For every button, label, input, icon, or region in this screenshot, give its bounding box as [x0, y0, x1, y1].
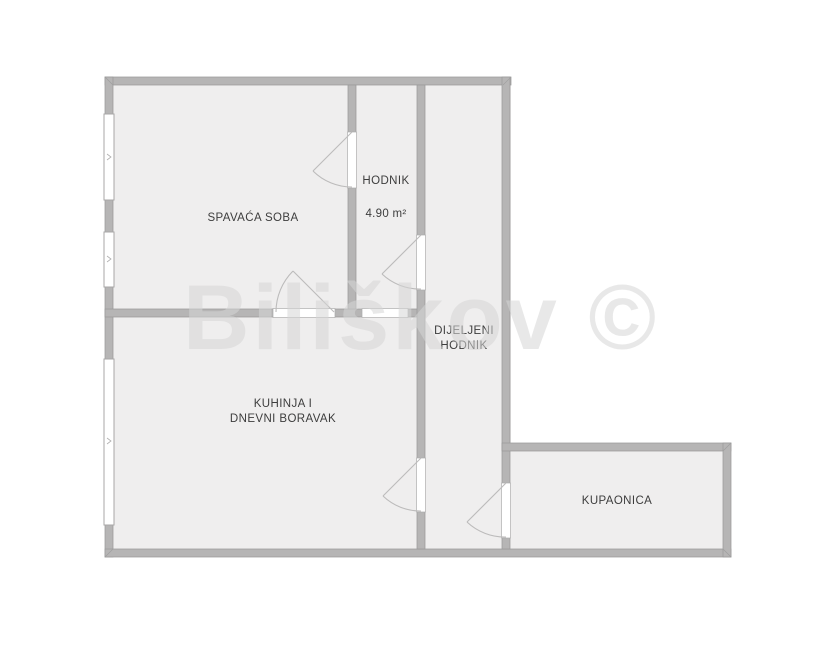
window-bedroom-2: [104, 232, 114, 287]
room-label-dijeljeni-line2: HODNIK: [440, 340, 487, 352]
opening-corridor-kupaonica: [502, 483, 511, 538]
wall-hodnik-lower: [348, 188, 356, 309]
room-label-dijeljeni-line1: DIJELJENI: [434, 325, 494, 337]
floor-plan-canvas: SPAVAĆA SOBA HODNIK 4.90 m² DIJELJENI HO…: [0, 0, 832, 650]
room-area-hodnik: 4.90 m²: [365, 208, 406, 220]
opening-hodnik-corridor: [417, 235, 426, 290]
opening-kitchen-corridor: [417, 458, 426, 512]
room-label-kuhinja-line1: KUHINJA I: [254, 398, 313, 410]
floor-plan-drawing: SPAVAĆA SOBA HODNIK 4.90 m² DIJELJENI HO…: [0, 0, 832, 650]
wall-right-upper: [502, 77, 510, 483]
passage-kitchen-hodnik: [362, 309, 408, 318]
window-bedroom-1: [104, 114, 114, 200]
room-label-kuhinja-line2: DNEVNI BORAVAK: [230, 413, 336, 425]
opening-bedroom-kitchen: [273, 309, 335, 318]
room-label-spavaca-soba: SPAVAĆA SOBA: [207, 211, 298, 224]
room-label-hodnik: HODNIK: [362, 175, 409, 187]
wall-hodnik-upper: [348, 85, 356, 132]
wall-corridor-lower: [417, 512, 425, 549]
wall-middle-left: [105, 309, 273, 317]
wall-kupaonica-top: [502, 443, 731, 451]
wall-middle-stub: [335, 309, 362, 317]
wall-kupaonica-right: [723, 443, 731, 557]
wall-top: [105, 77, 511, 85]
wall-bottom: [105, 549, 731, 557]
wall-corridor-middle: [417, 290, 425, 458]
opening-bedroom-hodnik: [348, 132, 357, 188]
room-label-kupaonica: KUPAONICA: [582, 495, 652, 507]
wall-right-stub: [502, 538, 510, 549]
wall-corridor-upper: [417, 85, 425, 235]
